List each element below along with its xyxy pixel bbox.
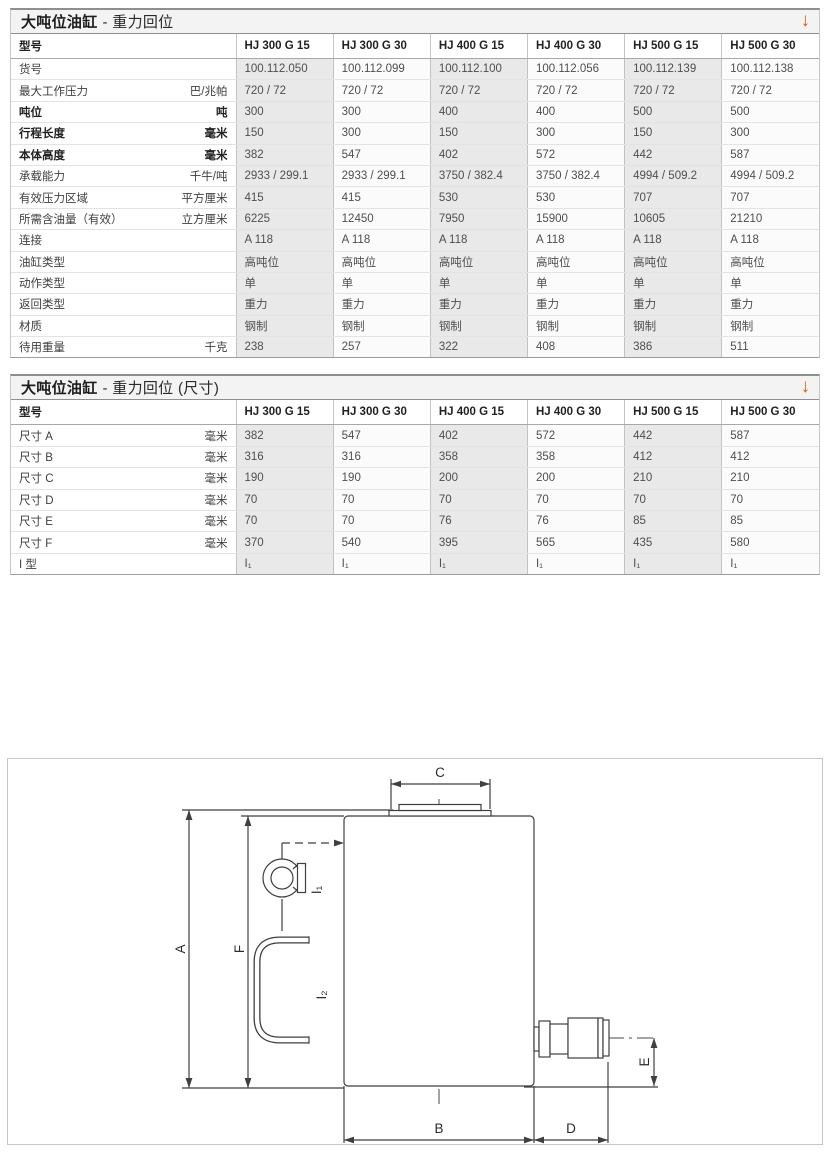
value-cell: 70: [236, 511, 333, 532]
row-label-cell: 动作类型: [11, 272, 236, 293]
value-cell: 442: [625, 144, 722, 165]
value-cell: 358: [527, 446, 624, 467]
row-unit: 立方厘米: [182, 211, 228, 227]
value-cell: 重力: [430, 294, 527, 315]
table-row: 尺寸 D毫米707070707070: [11, 489, 819, 510]
value-cell: 钢制: [236, 315, 333, 336]
value-cell: 4994 / 509.2: [625, 165, 722, 186]
row-unit: 毫米: [205, 492, 228, 508]
value-cell: 100.112.100: [430, 59, 527, 80]
row-label-cell: 返回类型: [11, 294, 236, 315]
value-cell: 高吨位: [625, 251, 722, 272]
row-label: 尺寸 B: [19, 449, 53, 465]
row-label-cell: 尺寸 A毫米: [11, 425, 236, 446]
value-cell: 400: [430, 101, 527, 122]
value-cell: 2933 / 299.1: [236, 165, 333, 186]
row-label-cell: I 型: [11, 553, 236, 574]
value-cell: 547: [333, 425, 430, 446]
value-cell: 70: [430, 489, 527, 510]
value-cell: 单: [430, 272, 527, 293]
row-label-cell: 待用重量千克: [11, 337, 236, 358]
value-cell: 150: [236, 123, 333, 144]
value-cell: 300: [236, 101, 333, 122]
value-cell: 500: [722, 101, 819, 122]
table-row: 尺寸 E毫米707076768585: [11, 511, 819, 532]
row-label-cell: 所需含油量（有效）立方厘米: [11, 208, 236, 229]
table-row: 待用重量千克238257322408386511: [11, 337, 819, 358]
value-cell: 10605: [625, 208, 722, 229]
value-cell: A 118: [722, 230, 819, 251]
column-header: HJ 400 G 30: [527, 34, 624, 59]
value-cell: 高吨位: [722, 251, 819, 272]
table-row: 尺寸 C毫米190190200200210210: [11, 468, 819, 489]
value-cell: 547: [333, 144, 430, 165]
value-cell: 钢制: [722, 315, 819, 336]
row-label: 材质: [19, 318, 42, 334]
label-C: C: [435, 765, 445, 780]
value-cell: 720 / 72: [722, 80, 819, 101]
value-cell: 70: [722, 489, 819, 510]
table-row: 尺寸 F毫米370540395565435580: [11, 532, 819, 553]
column-header: HJ 500 G 30: [722, 34, 819, 59]
table-row: 尺寸 A毫米382547402572442587: [11, 425, 819, 446]
row-unit: 巴/兆帕: [190, 83, 228, 99]
value-cell: I₁: [333, 553, 430, 574]
value-cell: 85: [625, 511, 722, 532]
eyebolt-icon: I₁: [263, 840, 344, 897]
value-cell: 238: [236, 337, 333, 358]
row-label: 待用重量: [19, 339, 65, 355]
label-A: A: [173, 945, 188, 954]
row-label: 货号: [19, 61, 42, 77]
value-cell: 150: [430, 123, 527, 144]
value-cell: 70: [527, 489, 624, 510]
down-arrow-icon[interactable]: ↓: [801, 11, 811, 30]
spec-table: 型号 HJ 300 G 15HJ 300 G 30HJ 400 G 15HJ 4…: [11, 34, 819, 357]
value-cell: A 118: [625, 230, 722, 251]
value-cell: 402: [430, 144, 527, 165]
value-cell: 高吨位: [236, 251, 333, 272]
value-cell: 210: [625, 468, 722, 489]
value-cell: 重力: [722, 294, 819, 315]
table-row: I 型I₁I₁I₁I₁I₁I₁: [11, 553, 819, 574]
value-cell: 316: [333, 446, 430, 467]
value-cell: I₁: [236, 553, 333, 574]
value-cell: 21210: [722, 208, 819, 229]
value-cell: 382: [236, 425, 333, 446]
datasheet-page: 大吨位油缸 - 重力回位 ↓ 型号 HJ 300 G 15HJ 300 G 30…: [0, 0, 830, 1160]
label-B: B: [434, 1121, 443, 1136]
value-cell: 单: [625, 272, 722, 293]
value-cell: 高吨位: [333, 251, 430, 272]
value-cell: 412: [722, 446, 819, 467]
down-arrow-icon[interactable]: ↓: [801, 377, 811, 396]
row-label: 尺寸 A: [19, 428, 53, 444]
value-cell: 高吨位: [527, 251, 624, 272]
model-header: 型号: [11, 400, 236, 425]
value-cell: 12450: [333, 208, 430, 229]
value-cell: 单: [236, 272, 333, 293]
value-cell: 钢制: [527, 315, 624, 336]
label-I2: I₂: [314, 991, 329, 1000]
value-cell: 386: [625, 337, 722, 358]
dimension-C: C: [391, 765, 490, 809]
value-cell: 720 / 72: [236, 80, 333, 101]
row-label: I 型: [19, 556, 37, 572]
row-label: 尺寸 C: [19, 470, 54, 486]
row-label-cell: 尺寸 D毫米: [11, 489, 236, 510]
row-unit: 毫米: [205, 449, 228, 465]
value-cell: 382: [236, 144, 333, 165]
model-header: 型号: [11, 34, 236, 59]
value-cell: 钢制: [625, 315, 722, 336]
value-cell: I₁: [430, 553, 527, 574]
value-cell: I₁: [527, 553, 624, 574]
table-title-bar: 大吨位油缸 - 重力回位 (尺寸) ↓: [11, 376, 819, 400]
cylinder-diagram-panel: C A F: [7, 758, 823, 1145]
handle-icon: I₂: [257, 937, 329, 1044]
row-label: 尺寸 F: [19, 535, 52, 551]
table-title-bar: 大吨位油缸 - 重力回位 ↓: [11, 10, 819, 34]
value-cell: 358: [430, 446, 527, 467]
value-cell: 100.112.139: [625, 59, 722, 80]
value-cell: 322: [430, 337, 527, 358]
value-cell: 15900: [527, 208, 624, 229]
value-cell: 300: [333, 101, 430, 122]
value-cell: 720 / 72: [625, 80, 722, 101]
column-header: HJ 500 G 15: [625, 34, 722, 59]
row-label-cell: 油缸类型: [11, 251, 236, 272]
value-cell: 2933 / 299.1: [333, 165, 430, 186]
coupler-fitting: [534, 1018, 609, 1058]
table-row: 尺寸 B毫米316316358358412412: [11, 446, 819, 467]
value-cell: 100.112.050: [236, 59, 333, 80]
value-cell: 70: [333, 489, 430, 510]
row-label: 有效压力区域: [19, 190, 88, 206]
value-cell: 钢制: [430, 315, 527, 336]
value-cell: 4994 / 509.2: [722, 165, 819, 186]
cylinder-diagram: C A F: [8, 759, 822, 1144]
value-cell: 400: [527, 101, 624, 122]
value-cell: 707: [625, 187, 722, 208]
row-unit: 千克: [205, 339, 228, 355]
column-header: HJ 400 G 15: [430, 34, 527, 59]
value-cell: 高吨位: [430, 251, 527, 272]
value-cell: 572: [527, 144, 624, 165]
saddle-flange: [389, 811, 491, 817]
row-label: 本体高度: [19, 147, 65, 163]
table-row: 吨位吨300300400400500500: [11, 101, 819, 122]
row-label-cell: 材质: [11, 315, 236, 336]
value-cell: 190: [236, 468, 333, 489]
row-label: 最大工作压力: [19, 83, 88, 99]
value-cell: 重力: [527, 294, 624, 315]
column-header: HJ 400 G 15: [430, 400, 527, 425]
value-cell: 钢制: [333, 315, 430, 336]
table-row: 油缸类型高吨位高吨位高吨位高吨位高吨位高吨位: [11, 251, 819, 272]
value-cell: I₁: [722, 553, 819, 574]
row-label-cell: 尺寸 E毫米: [11, 511, 236, 532]
row-unit: 毫米: [205, 125, 228, 141]
row-unit: 毫米: [205, 428, 228, 444]
header-row: 型号 HJ 300 G 15HJ 300 G 30HJ 400 G 15HJ 4…: [11, 34, 819, 59]
value-cell: 580: [722, 532, 819, 553]
row-label-cell: 尺寸 F毫米: [11, 532, 236, 553]
column-header: HJ 500 G 15: [625, 400, 722, 425]
row-label-cell: 尺寸 C毫米: [11, 468, 236, 489]
dimension-F: F: [232, 816, 344, 1088]
row-label-cell: 货号: [11, 59, 236, 80]
column-header: HJ 300 G 15: [236, 34, 333, 59]
header-row: 型号 HJ 300 G 15HJ 300 G 30HJ 400 G 15HJ 4…: [11, 400, 819, 425]
cylinder-body: [344, 816, 534, 1086]
value-cell: 707: [722, 187, 819, 208]
value-cell: 720 / 72: [333, 80, 430, 101]
row-label-cell: 本体高度毫米: [11, 144, 236, 165]
table-subtitle: - 重力回位 (尺寸): [103, 377, 220, 398]
label-D: D: [566, 1121, 576, 1136]
spec-table-main: 大吨位油缸 - 重力回位 ↓ 型号 HJ 300 G 15HJ 300 G 30…: [10, 8, 820, 358]
value-cell: 重力: [625, 294, 722, 315]
table-title: 大吨位油缸: [21, 11, 98, 32]
value-cell: A 118: [527, 230, 624, 251]
table-row: 材质钢制钢制钢制钢制钢制钢制: [11, 315, 819, 336]
column-header: HJ 300 G 30: [333, 400, 430, 425]
row-label: 尺寸 D: [19, 492, 54, 508]
row-label: 尺寸 E: [19, 513, 53, 529]
value-cell: 300: [527, 123, 624, 144]
column-header: HJ 500 G 30: [722, 400, 819, 425]
column-header: HJ 400 G 30: [527, 400, 624, 425]
value-cell: 370: [236, 532, 333, 553]
value-cell: A 118: [236, 230, 333, 251]
table-row: 承载能力千牛/吨2933 / 299.12933 / 299.13750 / 3…: [11, 165, 819, 186]
row-unit: 毫米: [205, 535, 228, 551]
value-cell: A 118: [333, 230, 430, 251]
value-cell: 511: [722, 337, 819, 358]
saddle-top: [399, 805, 481, 811]
value-cell: 3750 / 382.4: [527, 165, 624, 186]
table-row: 所需含油量（有效）立方厘米622512450795015900106052121…: [11, 208, 819, 229]
table-title: 大吨位油缸: [21, 377, 98, 398]
value-cell: 587: [722, 144, 819, 165]
label-I1: I₁: [309, 886, 324, 895]
row-label-cell: 连接: [11, 230, 236, 251]
row-unit: 千牛/吨: [190, 168, 228, 184]
value-cell: 442: [625, 425, 722, 446]
value-cell: 500: [625, 101, 722, 122]
value-cell: 6225: [236, 208, 333, 229]
value-cell: 720 / 72: [430, 80, 527, 101]
value-cell: 435: [625, 532, 722, 553]
row-label-cell: 最大工作压力巴/兆帕: [11, 80, 236, 101]
table-row: 连接A 118A 118A 118A 118A 118A 118: [11, 230, 819, 251]
value-cell: 530: [430, 187, 527, 208]
label-E: E: [637, 1058, 652, 1067]
column-header: HJ 300 G 15: [236, 400, 333, 425]
row-unit: 毫米: [205, 470, 228, 486]
row-label: 动作类型: [19, 275, 65, 291]
value-cell: 70: [236, 489, 333, 510]
row-label: 所需含油量（有效）: [19, 211, 123, 227]
value-cell: 300: [722, 123, 819, 144]
value-cell: 720 / 72: [527, 80, 624, 101]
row-unit: 吨: [216, 104, 228, 120]
value-cell: 7950: [430, 208, 527, 229]
value-cell: 572: [527, 425, 624, 446]
value-cell: 565: [527, 532, 624, 553]
value-cell: 单: [333, 272, 430, 293]
table-row: 最大工作压力巴/兆帕720 / 72720 / 72720 / 72720 / …: [11, 80, 819, 101]
value-cell: 单: [722, 272, 819, 293]
value-cell: 408: [527, 337, 624, 358]
table-subtitle: - 重力回位: [103, 11, 174, 32]
value-cell: 200: [430, 468, 527, 489]
value-cell: 300: [333, 123, 430, 144]
value-cell: 200: [527, 468, 624, 489]
value-cell: 3750 / 382.4: [430, 165, 527, 186]
value-cell: 70: [625, 489, 722, 510]
value-cell: 530: [527, 187, 624, 208]
row-unit: 毫米: [205, 513, 228, 529]
value-cell: 70: [333, 511, 430, 532]
value-cell: 190: [333, 468, 430, 489]
label-F: F: [232, 945, 247, 953]
value-cell: 540: [333, 532, 430, 553]
table-row: 货号100.112.050100.112.099100.112.100100.1…: [11, 59, 819, 80]
row-label: 返回类型: [19, 296, 65, 312]
spec-table-dimensions: 大吨位油缸 - 重力回位 (尺寸) ↓ 型号 HJ 300 G 15HJ 300…: [10, 374, 820, 575]
row-label-cell: 行程长度毫米: [11, 123, 236, 144]
value-cell: 257: [333, 337, 430, 358]
table-row: 有效压力区域平方厘米415415530530707707: [11, 187, 819, 208]
row-label-cell: 有效压力区域平方厘米: [11, 187, 236, 208]
value-cell: 100.112.099: [333, 59, 430, 80]
row-unit: 平方厘米: [182, 190, 228, 206]
row-label: 油缸类型: [19, 254, 65, 270]
row-label: 连接: [19, 232, 42, 248]
value-cell: 重力: [236, 294, 333, 315]
table-row: 行程长度毫米150300150300150300: [11, 123, 819, 144]
row-label-cell: 承载能力千牛/吨: [11, 165, 236, 186]
value-cell: 100.112.138: [722, 59, 819, 80]
row-label-cell: 尺寸 B毫米: [11, 446, 236, 467]
value-cell: 210: [722, 468, 819, 489]
value-cell: 76: [527, 511, 624, 532]
value-cell: 单: [527, 272, 624, 293]
row-label-cell: 吨位吨: [11, 101, 236, 122]
value-cell: 重力: [333, 294, 430, 315]
value-cell: 76: [430, 511, 527, 532]
value-cell: 587: [722, 425, 819, 446]
table-row: 动作类型单单单单单单: [11, 272, 819, 293]
value-cell: 316: [236, 446, 333, 467]
value-cell: 402: [430, 425, 527, 446]
value-cell: 100.112.056: [527, 59, 624, 80]
value-cell: 85: [722, 511, 819, 532]
value-cell: 415: [333, 187, 430, 208]
value-cell: 150: [625, 123, 722, 144]
value-cell: A 118: [430, 230, 527, 251]
value-cell: I₁: [625, 553, 722, 574]
value-cell: 395: [430, 532, 527, 553]
row-label: 行程长度: [19, 125, 65, 141]
spec-table: 型号 HJ 300 G 15HJ 300 G 30HJ 400 G 15HJ 4…: [11, 400, 819, 574]
row-label: 吨位: [19, 104, 42, 120]
row-unit: 毫米: [205, 147, 228, 163]
table-row: 返回类型重力重力重力重力重力重力: [11, 294, 819, 315]
value-cell: 412: [625, 446, 722, 467]
value-cell: 415: [236, 187, 333, 208]
row-label: 承载能力: [19, 168, 65, 184]
table-row: 本体高度毫米382547402572442587: [11, 144, 819, 165]
column-header: HJ 300 G 30: [333, 34, 430, 59]
